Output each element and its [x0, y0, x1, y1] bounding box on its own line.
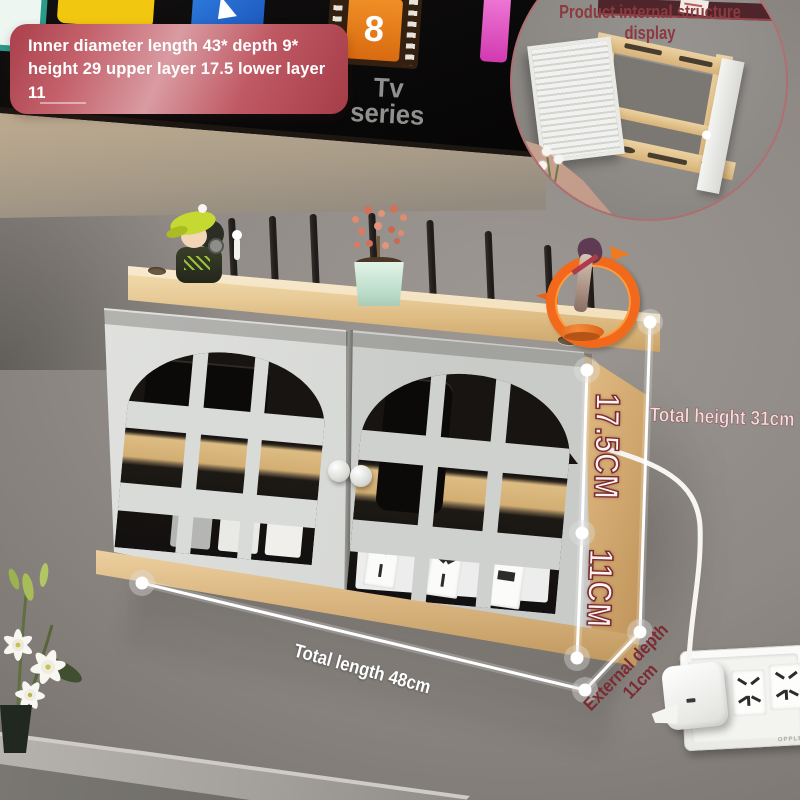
- film-sprocket-right: [405, 0, 419, 66]
- badge-underline: [40, 102, 86, 104]
- figurine-base-rim: [564, 332, 600, 341]
- white-stick: [234, 238, 240, 260]
- left-door-window: [115, 344, 331, 565]
- router-antenna: [485, 231, 495, 309]
- plant-blossom: [382, 242, 389, 249]
- router-antenna: [426, 220, 437, 304]
- mint-planter: [352, 262, 406, 306]
- plant-blossom: [354, 242, 360, 248]
- plant-blossom: [364, 206, 372, 214]
- spec-badge: Inner diameter length 43* depth 9* heigh…: [10, 24, 348, 114]
- tv-series-label: Tv series: [347, 74, 429, 129]
- flame-spur: [610, 246, 630, 260]
- inset-flower: [538, 161, 547, 170]
- inset-flower: [554, 155, 563, 164]
- right-door-window: [346, 365, 576, 614]
- product-photo-scene: 8 Tv series: [0, 0, 800, 800]
- white-stick-tip: [232, 230, 242, 240]
- plant-blossom: [388, 226, 395, 233]
- label-lower-section: 11CM: [578, 537, 621, 640]
- plant-blossom: [400, 214, 407, 221]
- socket-brand: OPPLE: [778, 736, 800, 743]
- door-knob-right: [350, 465, 372, 487]
- figurine-boy-pompom: [198, 204, 207, 213]
- figurine-boy-pattern: [184, 256, 210, 270]
- adapter-plug-nose: [651, 703, 678, 724]
- plant-blossom: [374, 222, 382, 230]
- inset-open-louver-door: [527, 36, 625, 163]
- socket-outlet: [768, 663, 800, 711]
- plant-blossom: [366, 240, 373, 247]
- spec-badge-text: Inner diameter length 43* depth 9* heigh…: [28, 35, 333, 105]
- plant-blossom: [378, 210, 385, 217]
- plant-blossom: [358, 228, 365, 235]
- adapter-usb-slot: [686, 698, 695, 703]
- figurine-boy-headphone: [208, 238, 224, 254]
- plant-blossom: [394, 238, 400, 244]
- label-upper-section: 17.5CM: [585, 378, 626, 515]
- inset-title: Product internal structure display: [552, 1, 747, 44]
- plant-blossom: [390, 205, 398, 213]
- film-tile-number: 8: [345, 0, 403, 62]
- power-adapter: [661, 661, 729, 731]
- play-arrow-icon: [213, 0, 242, 25]
- socket-outlet: [731, 669, 767, 717]
- plant-blossom: [352, 216, 359, 223]
- door-knob-left: [328, 460, 350, 482]
- plant-blossom: [398, 230, 404, 236]
- tv-app-tile-pink: [480, 0, 512, 63]
- inset-flower: [542, 147, 551, 156]
